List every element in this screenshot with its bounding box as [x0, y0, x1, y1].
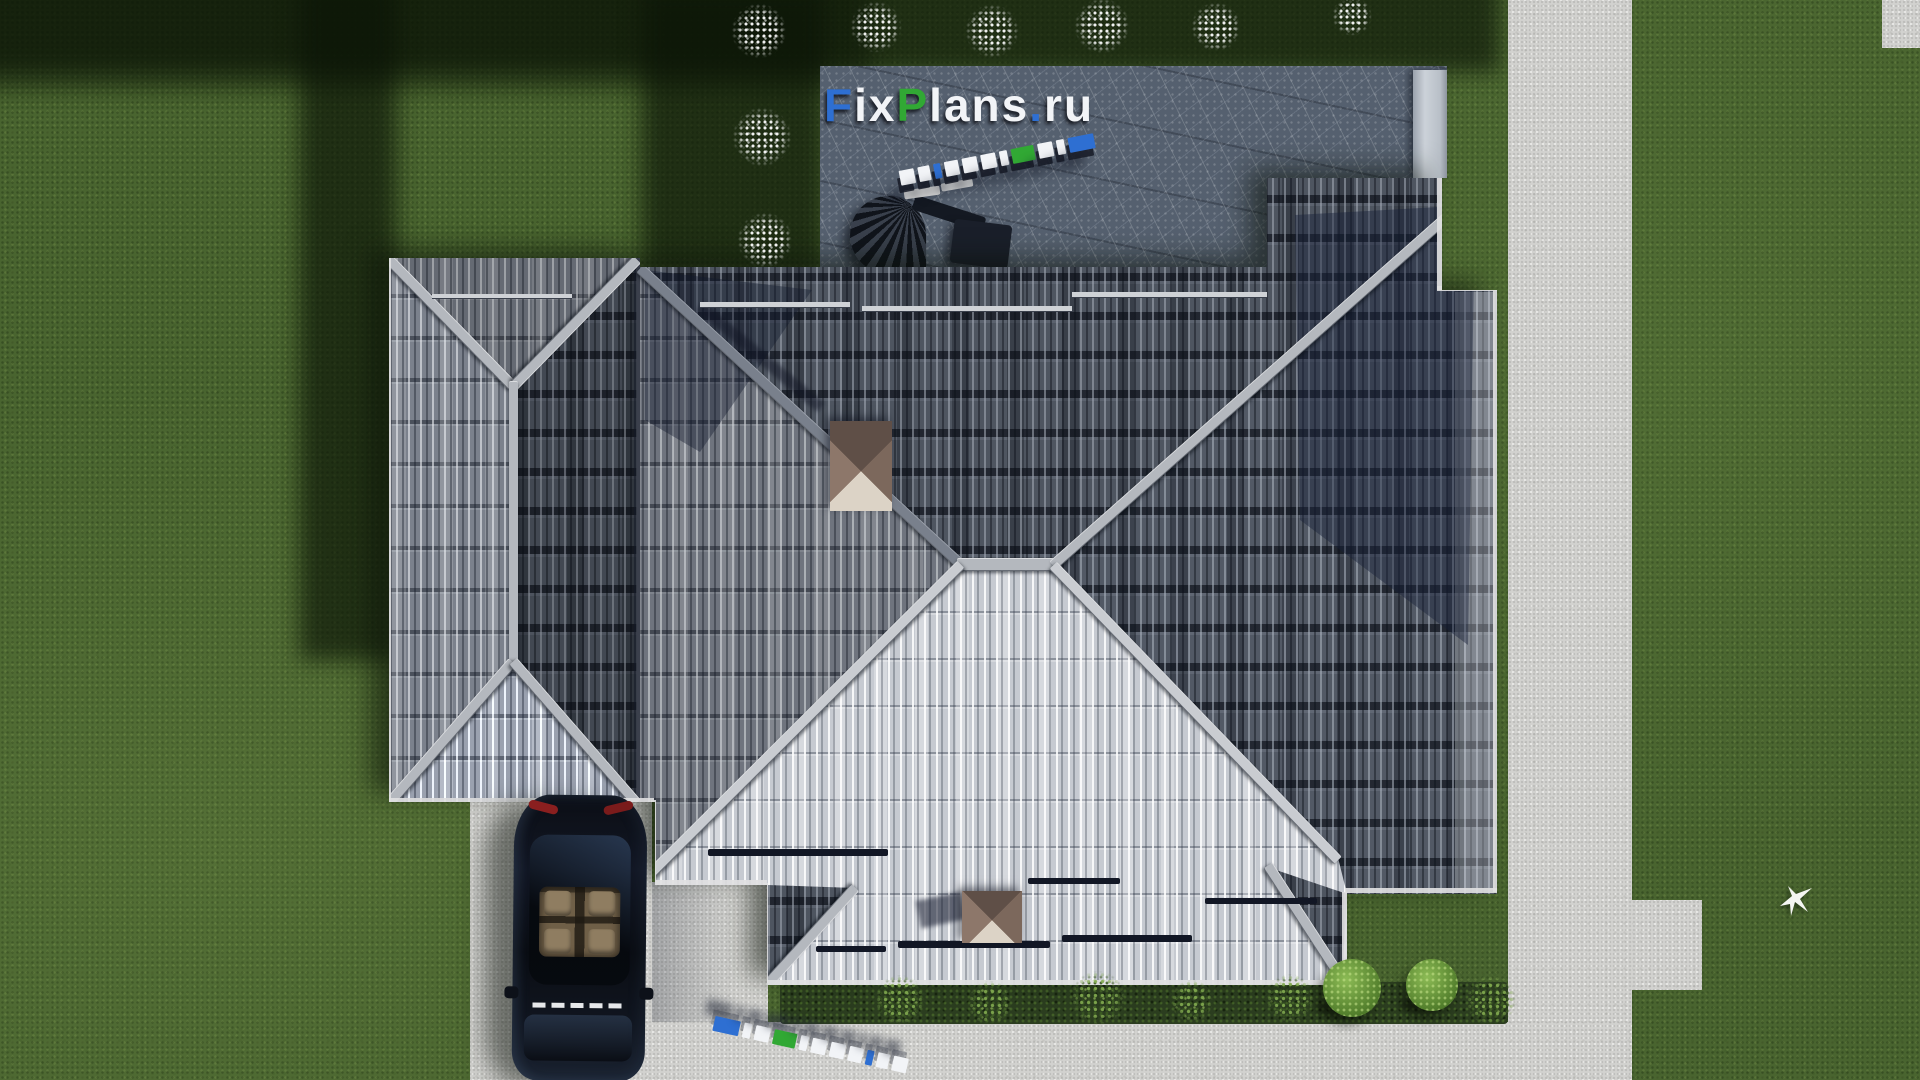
scene: FixPlans.ru: [0, 0, 1920, 1080]
car-cabin-interior: [539, 887, 621, 958]
watermark-letter: F: [824, 79, 854, 131]
watermark-3d-letter-block: [891, 1056, 909, 1074]
bird-icon: [1778, 884, 1816, 920]
car-windshield: [524, 1014, 632, 1061]
roof-valley-joint: [634, 258, 640, 802]
watermark-3d-letter-block: [753, 1025, 771, 1043]
watermark-letter: l: [929, 79, 944, 131]
car-mirror-right: [639, 988, 653, 1000]
car-roof-glass: [529, 834, 632, 985]
snow-rail-1: [862, 306, 1072, 312]
watermark-letter: x: [869, 79, 897, 131]
eave-inner-corner-v: [763, 883, 768, 983]
eave-right: [1493, 288, 1498, 892]
car-seat-rear-right: [588, 891, 616, 916]
watermark-letter: i: [854, 79, 869, 131]
watermark-letter: r: [1044, 79, 1064, 131]
snow-rail-3: [700, 302, 850, 308]
car-seat-rear-left: [544, 891, 572, 916]
tree-1: [1323, 959, 1381, 1017]
eave-top-right: [1267, 173, 1444, 178]
watermark-3d-letter-block: [828, 1042, 846, 1060]
bush-green-3: [1071, 971, 1125, 1025]
car-windshield-trim: [532, 1003, 624, 1009]
bush-white-3: [965, 4, 1019, 58]
car: [512, 794, 648, 1080]
bush-white-2: [850, 1, 902, 53]
bush-green-2: [968, 981, 1012, 1025]
eave-left: [386, 256, 391, 804]
eave-bottom-main: [765, 980, 1349, 985]
bush-white-4: [1074, 0, 1130, 54]
ridge-main-horizontal: [957, 558, 1057, 571]
watermark-3d-letter-block: [875, 1052, 890, 1069]
watermark-text: FixPlans.ru: [824, 78, 1094, 132]
bush-green-1: [875, 975, 925, 1025]
tree-2: [1406, 959, 1458, 1011]
watermark-letter: s: [1002, 79, 1030, 131]
bush-white-8: [737, 212, 793, 268]
watermark-3d-letter-block: [798, 1035, 809, 1051]
bush-green-6: [1466, 975, 1516, 1025]
snow-bar-4: [1028, 878, 1120, 884]
chimney-upper: [830, 421, 892, 511]
watermark-letter: u: [1064, 79, 1094, 131]
snow-bar-3: [1062, 935, 1192, 942]
snow-bar-1: [708, 849, 888, 856]
roof-shadow-wrap: [0, 0, 1920, 1080]
bush-white-1: [731, 3, 787, 59]
car-seat-front-right: [587, 929, 615, 954]
car-mirror-left: [504, 986, 518, 998]
eave-inner-corner-h: [652, 880, 767, 885]
eave-step-h: [1437, 286, 1499, 291]
watermark-3d-letter-block: [810, 1038, 828, 1056]
watermark-3d-letter-block: [847, 1046, 864, 1064]
bush-green-4: [1171, 980, 1213, 1022]
eave-left-step: [651, 800, 656, 883]
watermark-letter: .: [1029, 79, 1044, 131]
eave-step-right: [1437, 176, 1442, 290]
watermark-letter: a: [944, 79, 972, 131]
snow-rail-2: [1072, 292, 1267, 298]
bush-green-5: [1266, 974, 1314, 1022]
car-seat-front-left: [544, 929, 572, 954]
watermark-3d-letter-block: [865, 1050, 875, 1066]
eave-top-main: [640, 262, 1267, 267]
bush-white-5: [1191, 2, 1241, 52]
chimney-lower: [962, 891, 1022, 943]
snow-rail-4: [432, 294, 572, 299]
snow-bar-5: [1205, 898, 1317, 904]
roof: [0, 0, 1920, 1080]
eave-bottom-right: [1345, 888, 1497, 893]
watermark-3d-letter-block: [742, 1022, 753, 1038]
ridge-left-vertical: [509, 381, 518, 666]
eave-top-left: [389, 253, 639, 258]
bush-white-7: [732, 107, 792, 167]
watermark-letter: P: [896, 79, 929, 131]
snow-bar-6: [816, 946, 886, 952]
watermark-letter: n: [972, 79, 1002, 131]
